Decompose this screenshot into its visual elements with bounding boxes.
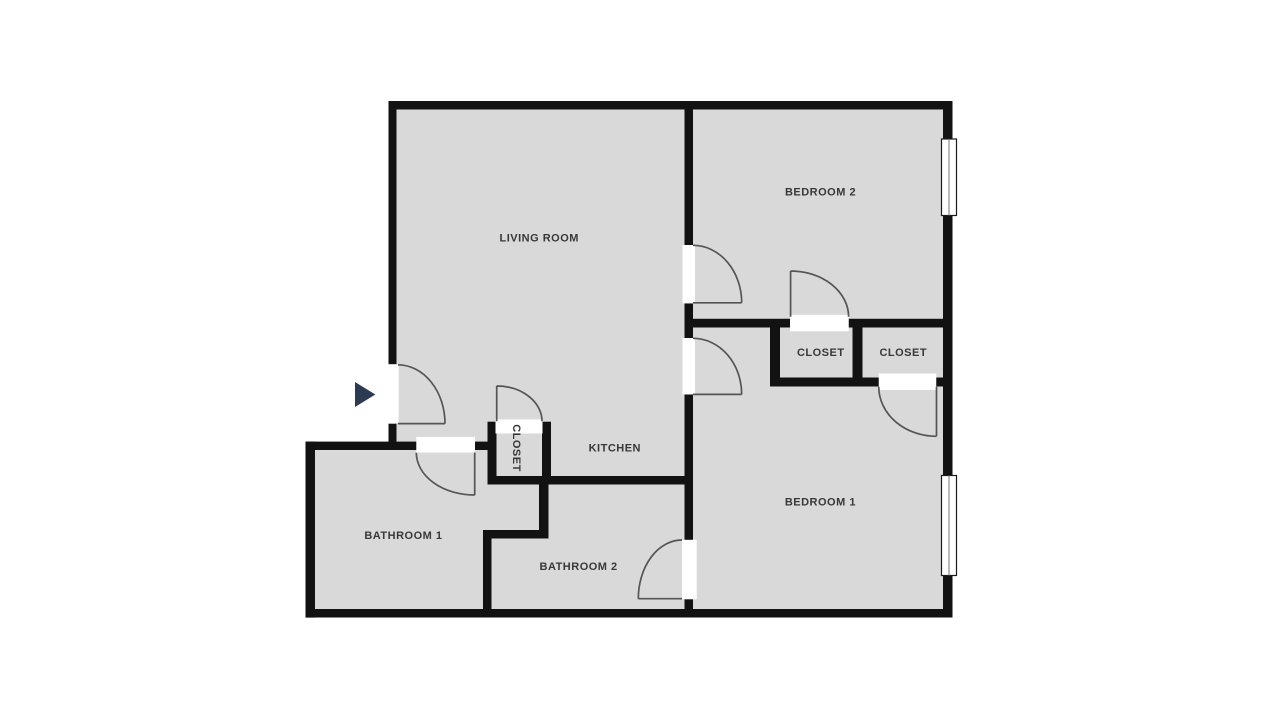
svg-text:LIVING ROOM: LIVING ROOM [499,233,578,245]
svg-text:BATHROOM 2: BATHROOM 2 [540,561,618,573]
svg-text:KITCHEN: KITCHEN [589,442,641,454]
svg-text:BEDROOM 2: BEDROOM 2 [785,187,856,199]
svg-text:BATHROOM 1: BATHROOM 1 [364,530,442,542]
svg-text:BEDROOM 1: BEDROOM 1 [785,496,856,508]
svg-text:CLOSET: CLOSET [879,347,927,359]
svg-text:CLOSET: CLOSET [510,424,522,472]
svg-text:CLOSET: CLOSET [797,347,845,359]
